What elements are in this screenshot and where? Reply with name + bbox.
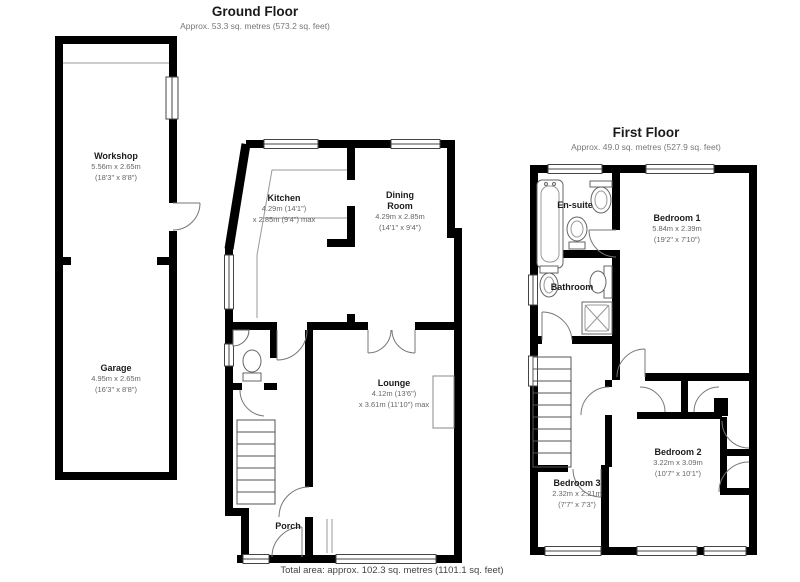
- room-label-bedroom-1: Bedroom 1 5.84m x 2.39m (19'2" x 7'10"): [652, 213, 702, 245]
- angled-wall: [229, 144, 246, 249]
- bathtub-fixture: [537, 180, 563, 268]
- door-arc: [168, 203, 200, 231]
- total-area-text: Total area: approx. 102.3 sq. metres (11…: [280, 565, 503, 576]
- sink-fixture: [233, 330, 249, 346]
- porch-glazing-lines: [327, 519, 332, 553]
- room-label-workshop: Workshop 5.56m x 2.65m (18'3" x 8'8"): [91, 151, 141, 183]
- room-label-bedroom-2: Bedroom 2 3.22m x 3.09m (10'7" x 10'1"): [653, 447, 703, 479]
- fireplace-unit: [433, 376, 454, 428]
- first-floor-title: First Floor Approx. 49.0 sq. metres (527…: [571, 125, 721, 153]
- sink-fixture: [590, 266, 612, 298]
- shower-fixture: [582, 302, 612, 334]
- sink-fixture: [590, 181, 612, 213]
- room-label-kitchen: Kitchen 4.29m (14'1") x 2.85m (9'4") max: [253, 193, 315, 225]
- room-label-porch: Porch: [275, 521, 301, 532]
- toilet-fixture: [243, 350, 261, 381]
- room-label-garage: Garage 4.95m x 2.65m (16'3" x 8'8"): [91, 363, 141, 395]
- room-label-en-suite: En-suite: [557, 200, 593, 211]
- floor-area-subtitle: Approx. 49.0 sq. metres (527.9 sq. feet): [571, 141, 721, 153]
- ground-floor-title: Ground Floor Approx. 53.3 sq. metres (57…: [180, 4, 330, 32]
- room-label-bathroom: Bathroom: [551, 282, 594, 293]
- room-label-lounge: Lounge 4.12m (13'6") x 3.61m (11'10") ma…: [359, 378, 429, 410]
- room-label-dining-room: Dining Room 4.29m x 2.85m (14'1" x 9'4"): [375, 190, 425, 233]
- floor-plan-drawing: [0, 0, 800, 582]
- staircase: [237, 420, 275, 504]
- floor-area-subtitle: Approx. 53.3 sq. metres (573.2 sq. feet): [180, 20, 330, 32]
- floor-title: First Floor: [571, 125, 721, 141]
- room-label-bedroom-3: Bedroom 3 2.32m x 2.21m (7'7" x 7'3"): [552, 478, 602, 510]
- floor-plan: Ground Floor Approx. 53.3 sq. metres (57…: [0, 0, 800, 582]
- door-arc: [542, 230, 749, 497]
- floor-title: Ground Floor: [180, 4, 330, 20]
- staircase: [533, 357, 571, 467]
- window: [166, 77, 178, 119]
- outbuilding-walls: [55, 36, 177, 480]
- toilet-fixture: [567, 217, 587, 249]
